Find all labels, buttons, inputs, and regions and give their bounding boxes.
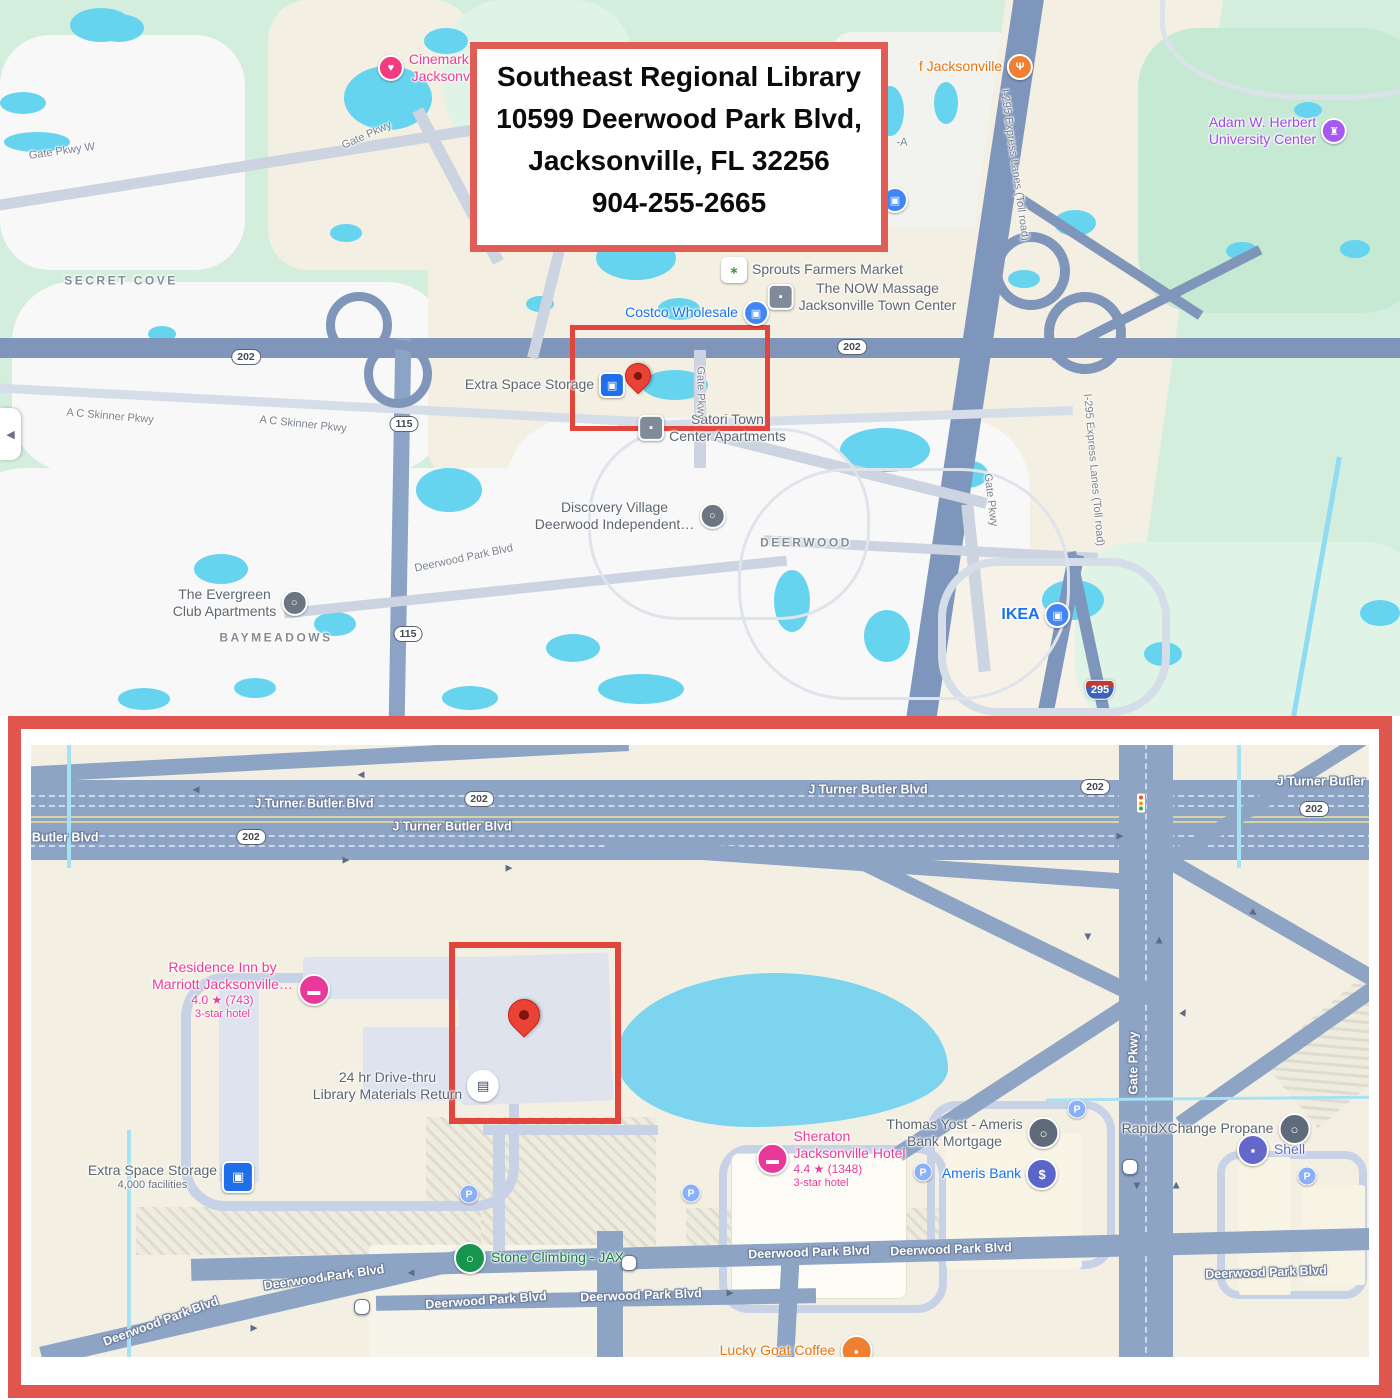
arrow-icon: ▶ <box>251 1323 258 1334</box>
label-text: J Turner Butler Blvd <box>392 819 511 834</box>
label-text: Extra Space Storage4,000 facilities <box>88 1162 217 1192</box>
poi-satori-town-center-apartments[interactable]: ▪Satori TownCenter Apartments <box>638 411 786 445</box>
label-text: -A <box>897 136 908 149</box>
poi-lucky-goat-coffee[interactable]: Lucky Goat Coffee▪ <box>720 1335 873 1357</box>
label-text: The NOW MassageJacksonville Town Center <box>799 280 957 314</box>
library-name: Southeast Regional Library <box>497 56 861 98</box>
lane-arrow-icon: ▶ <box>506 863 513 874</box>
label-text: 202 <box>1299 801 1329 817</box>
route-shield-202: 202 <box>236 829 266 845</box>
label-text: f Jacksonville <box>919 58 1002 75</box>
label-text: 202 <box>231 349 261 365</box>
road-label-j-turner-butler-blvd: J Turner Butler Blvd <box>392 819 511 834</box>
label-text: J Turner Butler <box>1277 774 1366 789</box>
label-text: Extra Space Storage <box>465 376 594 393</box>
label-text: The EvergreenClub Apartments <box>173 586 277 620</box>
label-text: Residence Inn byMarriott Jacksonville…4.… <box>152 959 293 1021</box>
arrow-icon: ▶ <box>1083 934 1094 941</box>
pin-dot-icon <box>632 370 643 381</box>
massage-icon[interactable]: ▪ <box>768 284 794 310</box>
parking-icon[interactable]: P <box>1298 1167 1317 1186</box>
label-text: 202 <box>1080 779 1110 795</box>
map-shape <box>31 745 629 783</box>
restaurant-icon[interactable]: Ψ <box>1007 54 1033 80</box>
hotel-icon[interactable]: ▬ <box>756 1143 788 1175</box>
lane-arrow-icon: ▶ <box>1171 1182 1182 1189</box>
arrow-icon: ▶ <box>408 1268 415 1279</box>
poi-extra-space-storage[interactable]: Extra Space Storage4,000 facilities▣ <box>88 1161 254 1193</box>
label-text: r Butler Blvd <box>31 830 99 845</box>
label-text: Costco Wholesale <box>625 304 738 321</box>
overview-map[interactable]: ♥Cinemark TinseJacksonville arf Jacksonv… <box>0 0 1400 716</box>
gas-station-icon[interactable]: ▪ <box>1237 1134 1269 1166</box>
label-text: Shell <box>1274 1141 1305 1158</box>
water-body <box>598 674 684 704</box>
lane-arrow-icon: ▶ <box>358 770 365 781</box>
label-text: Discovery VillageDeerwood Independent… <box>535 499 695 533</box>
lane-arrow-icon: ▶ <box>193 785 200 796</box>
water-body <box>118 688 170 710</box>
label-text: Lucky Goat Coffee <box>720 1342 836 1357</box>
poi-residence-inn-marriott[interactable]: Residence Inn byMarriott Jacksonville…4.… <box>152 959 330 1021</box>
poi-discovery-village[interactable]: Discovery VillageDeerwood Independent…○ <box>535 499 726 533</box>
route-shield-202: 202 <box>464 791 494 807</box>
arrow-icon: ▶ <box>1178 1006 1191 1017</box>
parking-icon[interactable]: P <box>1068 1100 1087 1119</box>
poi-the-now-massage[interactable]: ▪The NOW MassageJacksonville Town Center <box>768 280 957 314</box>
arrow-icon: ▶ <box>1154 937 1165 944</box>
parking-icon[interactable]: P <box>460 1185 479 1204</box>
map-shape <box>1166 855 1369 991</box>
water-body <box>94 14 144 42</box>
office-icon[interactable]: ○ <box>1028 1117 1060 1149</box>
road-label-j-turner-butler-blvd: J Turner Butler Blvd <box>254 796 373 811</box>
water-body <box>442 686 498 710</box>
label-text: Thomas Yost - AmerisBank Mortgage <box>886 1116 1022 1150</box>
map-shape <box>483 1125 658 1135</box>
label-text: Adam W. HerbertUniversity Center <box>1209 114 1316 148</box>
poi-restaurant-jacksonville[interactable]: f JacksonvilleΨ <box>919 54 1033 80</box>
lane-arrow-icon: ▶ <box>1117 831 1124 842</box>
road-shape <box>364 340 432 408</box>
area-label-secret-cove: SECRET COVE <box>64 274 178 289</box>
parking-icon[interactable]: P <box>1068 1100 1087 1119</box>
road-label-j-turner-butler-partial: J Turner Butler <box>1277 774 1366 789</box>
route-shield-202: 202 <box>1080 779 1110 795</box>
label-text: BAYMEADOWS <box>219 631 332 646</box>
water-body <box>194 554 248 584</box>
arrow-icon: ▶ <box>343 855 350 866</box>
poi-library-materials-return[interactable]: 24 hr Drive-thruLibrary Materials Return… <box>313 1069 499 1103</box>
poi-ikea[interactable]: IKEA▣ <box>1001 602 1070 628</box>
arrow-icon: ▶ <box>193 785 200 796</box>
label-text: IKEA <box>1001 605 1039 625</box>
parking-icon[interactable]: P <box>914 1163 933 1182</box>
lane-arrow-icon: ▶ <box>408 1268 415 1279</box>
hotel-icon[interactable]: ▬ <box>298 974 330 1006</box>
climbing-icon[interactable]: ○ <box>454 1242 486 1274</box>
poi-costco-wholesale[interactable]: Costco Wholesale▣ <box>625 300 769 326</box>
label-text: J Turner Butler Blvd <box>808 782 927 797</box>
label-text: 202 <box>837 339 867 355</box>
area-label-deerwood: DEERWOOD <box>760 536 852 551</box>
arrow-icon: ▶ <box>727 1288 734 1299</box>
address-info-box: Southeast Regional Library 10599 Deerwoo… <box>470 42 888 252</box>
apartments-icon[interactable]: ▪ <box>638 415 664 441</box>
transit-stop-icon: ▣ <box>1122 1159 1138 1175</box>
road-label-gate-pkwy: Gate Pkwy <box>1126 1031 1141 1094</box>
storage-lock-icon[interactable]: ▣ <box>222 1161 254 1193</box>
poi-adam-w-herbert-university-center[interactable]: Adam W. HerbertUniversity Center♜ <box>1209 114 1347 148</box>
traffic-light-dot <box>1139 807 1143 811</box>
bus-icon: ▣ <box>354 1299 370 1315</box>
parking-icon[interactable]: P <box>1298 1167 1317 1186</box>
water-body <box>0 92 46 114</box>
detail-map-frame: J Turner Butler BlvdJ Turner Butler Blvd… <box>8 716 1392 1398</box>
lane-arrow-icon: ▶ <box>727 1288 734 1299</box>
parking-icon[interactable]: P <box>682 1184 701 1203</box>
area-label-baymeadows: BAYMEADOWS <box>219 631 332 646</box>
lane-arrow-icon: ▶ <box>1178 1006 1191 1017</box>
water-body <box>1360 600 1400 626</box>
bus-icon: ▣ <box>1122 1159 1138 1175</box>
transit-stop-icon: ▣ <box>354 1299 370 1315</box>
map-shape <box>1237 745 1241 868</box>
book-icon[interactable]: ▤ <box>467 1070 499 1102</box>
label-text: Sprouts Farmers Market <box>752 261 903 278</box>
lane-arrow-icon: ▶ <box>251 1323 258 1334</box>
map-shape <box>616 973 948 1127</box>
lane-arrow-icon: ▶ <box>1132 1183 1143 1190</box>
poi-stone-climbing-jax[interactable]: ○Stone Climbing - JAX <box>454 1242 624 1274</box>
route-shield-115: 115 <box>390 416 419 432</box>
arrow-icon: ▶ <box>1171 1182 1182 1189</box>
water-body <box>330 224 362 242</box>
route-shield-202: 202 <box>837 339 867 355</box>
side-panel-collapse-button[interactable]: ◀ <box>0 408 21 460</box>
road-label-butler-blvd-partial: r Butler Blvd <box>31 830 99 845</box>
label-text: 202 <box>464 791 494 807</box>
parking-icon[interactable]: P <box>914 1163 933 1182</box>
label-text: J Turner Butler Blvd <box>254 796 373 811</box>
poi-sheraton-jacksonville-hotel[interactable]: ▬SheratonJacksonville Hotel4.4 ★ (1348)3… <box>756 1128 905 1190</box>
route-shield-202: 202 <box>1299 801 1329 817</box>
storage-lock-icon[interactable]: ▣ <box>599 372 625 398</box>
arrow-icon: ▶ <box>1117 831 1124 842</box>
water-body <box>1340 240 1370 258</box>
bus-icon: ▣ <box>621 1255 637 1271</box>
parking-icon[interactable]: P <box>682 1184 701 1203</box>
label-text: SECRET COVE <box>64 274 178 289</box>
interstate-shield-295: 295 <box>1085 680 1115 700</box>
label-text: Ameris Bank <box>942 1165 1021 1182</box>
label-text: Gate Pkwy <box>693 366 706 419</box>
label-text: 115 <box>390 416 419 432</box>
label-text: Satori TownCenter Apartments <box>669 411 786 445</box>
label-text: 115 <box>394 626 423 642</box>
water-body <box>546 634 600 662</box>
sprouts-logo-icon[interactable]: ∗ <box>721 257 747 283</box>
map-shape <box>493 1129 505 1259</box>
poi-ameris-bank[interactable]: Ameris Bank$ <box>942 1158 1058 1190</box>
poi-evergreen-club-apartments[interactable]: The EvergreenClub Apartments○ <box>173 586 308 620</box>
chevron-left-icon: ◀ <box>6 428 14 441</box>
water-body <box>234 678 276 698</box>
water-body <box>416 468 482 512</box>
road-shape <box>738 468 1070 700</box>
traffic-light-dot <box>1139 796 1143 800</box>
screenshot-root: ♥Cinemark TinseJacksonville arf Jacksonv… <box>0 0 1400 1400</box>
label-text: Stone Climbing - JAX <box>491 1249 624 1266</box>
road-label-j-turner-butler-blvd: J Turner Butler Blvd <box>808 782 927 797</box>
library-street: 10599 Deerwood Park Blvd, <box>496 98 862 140</box>
label-text: Gate Pkwy <box>1126 1031 1141 1094</box>
label-text: 24 hr Drive-thruLibrary Materials Return <box>313 1069 462 1103</box>
poi-shell[interactable]: ▪Shell <box>1237 1134 1305 1166</box>
library-phone: 904-255-2665 <box>592 182 766 224</box>
traffic-light-icon <box>1136 793 1146 814</box>
label-text: 295 <box>1085 680 1115 700</box>
road-shape <box>1044 292 1126 374</box>
coffee-icon[interactable]: ▪ <box>840 1335 872 1357</box>
lane-arrow-icon: ▶ <box>1083 934 1094 941</box>
map-shape <box>1145 745 1147 1357</box>
route-shield-202: 202 <box>231 349 261 365</box>
senior-living-icon[interactable]: ○ <box>699 503 725 529</box>
arrow-icon: ▶ <box>506 863 513 874</box>
library-city-state-zip: Jacksonville, FL 32256 <box>528 140 829 182</box>
poi-extra-space-storage-top[interactable]: Extra Space Storage▣ <box>465 372 625 398</box>
lane-arrow-icon: ▶ <box>1154 937 1165 944</box>
parking-icon[interactable]: P <box>460 1185 479 1204</box>
university-icon[interactable]: ♜ <box>1321 118 1347 144</box>
heart-icon[interactable]: ♥ <box>378 55 404 81</box>
dollar-icon[interactable]: $ <box>1026 1158 1058 1190</box>
road-label-gate-pkwy-vertical: Gate Pkwy <box>693 366 706 419</box>
map-shape <box>67 745 71 868</box>
building-label-a: -A <box>897 136 908 149</box>
arrow-icon: ▶ <box>358 770 365 781</box>
road-shape <box>992 232 1070 310</box>
shopping-icon[interactable]: ▣ <box>1045 602 1071 628</box>
poi-thomas-yost-ameris-bank-mortgage[interactable]: Thomas Yost - AmerisBank Mortgage○ <box>886 1116 1059 1150</box>
apartments-icon[interactable]: ○ <box>281 590 307 616</box>
shopping-icon[interactable]: ▣ <box>743 300 769 326</box>
traffic-light-dot <box>1139 801 1143 805</box>
lane-arrow-icon: ▶ <box>343 855 350 866</box>
label-text: DEERWOOD <box>760 536 852 551</box>
water-body <box>934 82 958 124</box>
route-shield-115: 115 <box>394 626 423 642</box>
detail-map[interactable]: J Turner Butler BlvdJ Turner Butler Blvd… <box>31 745 1369 1357</box>
pin-dot-icon <box>517 1008 531 1022</box>
label-text: 202 <box>236 829 266 845</box>
transit-stop-icon: ▣ <box>621 1255 637 1271</box>
arrow-icon: ▶ <box>1132 1183 1143 1190</box>
